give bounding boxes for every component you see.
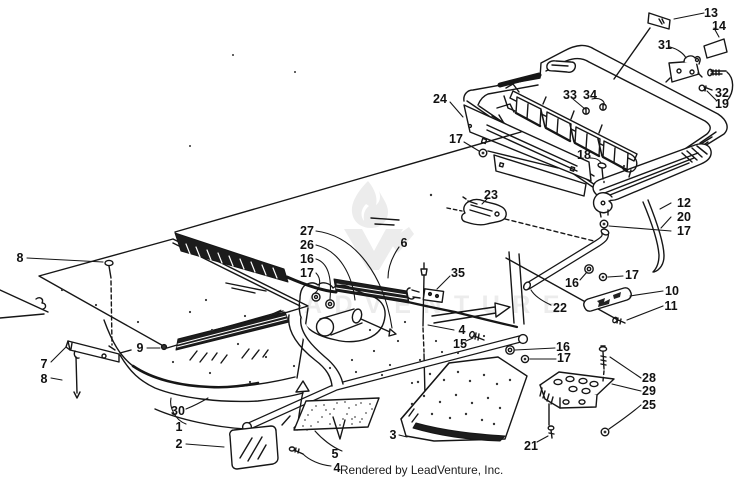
- svg-text:34: 34: [583, 88, 597, 102]
- svg-text:13: 13: [704, 6, 718, 20]
- svg-text:30: 30: [171, 404, 185, 418]
- svg-text:12: 12: [677, 196, 691, 210]
- svg-text:8: 8: [41, 372, 48, 386]
- svg-text:16: 16: [565, 276, 579, 290]
- svg-text:24: 24: [433, 92, 447, 106]
- svg-text:8: 8: [17, 251, 24, 265]
- svg-text:7: 7: [41, 357, 48, 371]
- svg-text:19: 19: [715, 97, 729, 111]
- svg-text:18: 18: [577, 148, 591, 162]
- svg-text:4: 4: [459, 323, 466, 337]
- svg-text:33: 33: [563, 88, 577, 102]
- svg-text:5: 5: [332, 447, 339, 461]
- svg-text:22: 22: [553, 301, 567, 315]
- svg-text:17: 17: [625, 268, 639, 282]
- svg-text:17: 17: [300, 266, 314, 280]
- svg-text:29: 29: [642, 384, 656, 398]
- svg-text:17: 17: [557, 351, 571, 365]
- svg-text:17: 17: [449, 132, 463, 146]
- svg-text:9: 9: [137, 341, 144, 355]
- svg-text:Rendered by LeadVenture, Inc.: Rendered by LeadVenture, Inc.: [340, 463, 503, 477]
- svg-text:10: 10: [665, 284, 679, 298]
- svg-text:11: 11: [664, 299, 677, 313]
- svg-text:3: 3: [390, 428, 397, 442]
- svg-text:6: 6: [401, 236, 408, 250]
- svg-text:35: 35: [451, 266, 465, 280]
- svg-text:23: 23: [484, 188, 498, 202]
- svg-text:16: 16: [300, 252, 314, 266]
- svg-text:15: 15: [453, 337, 467, 351]
- svg-text:31: 31: [658, 38, 672, 52]
- svg-text:2: 2: [176, 437, 183, 451]
- svg-text:17: 17: [677, 224, 691, 238]
- svg-text:21: 21: [524, 439, 538, 453]
- svg-text:28: 28: [642, 371, 656, 385]
- svg-text:1: 1: [176, 420, 183, 434]
- svg-text:26: 26: [300, 238, 314, 252]
- svg-text:27: 27: [300, 224, 314, 238]
- svg-text:14: 14: [712, 19, 726, 33]
- svg-text:25: 25: [642, 398, 656, 412]
- svg-text:20: 20: [677, 210, 691, 224]
